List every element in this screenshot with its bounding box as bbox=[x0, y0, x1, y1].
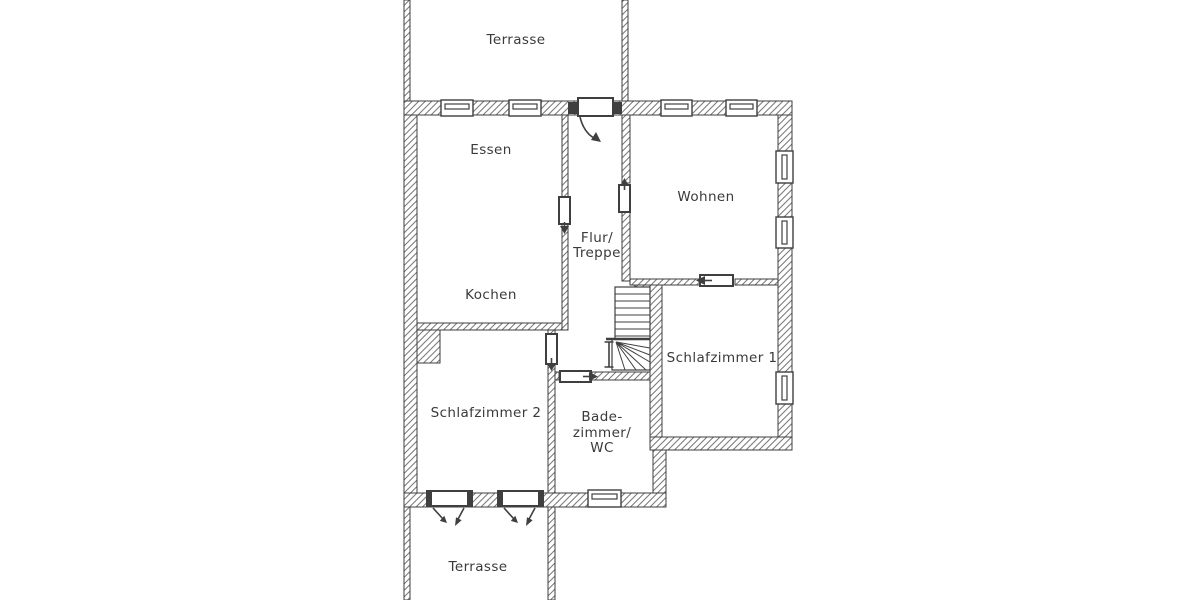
wall-schlafzimmer2-bad bbox=[548, 364, 555, 493]
wall-wohnen-south-left bbox=[630, 279, 700, 285]
wall-west-schlafzimmer1 bbox=[650, 285, 662, 437]
wall-essen-south bbox=[417, 323, 562, 330]
wall-bad-north-stub bbox=[555, 372, 559, 380]
wall-essen-flur-upper bbox=[562, 115, 568, 197]
room-label-bad-line3: WC bbox=[590, 440, 614, 456]
wall-flur-wohnen-upper bbox=[622, 115, 630, 183]
room-label-bad-line2: zimmer/ bbox=[573, 425, 631, 441]
room-label-schlafzimmer1: Schlafzimmer 1 bbox=[667, 350, 778, 366]
wall-wohnen-south-right bbox=[735, 279, 778, 285]
window-essen-1 bbox=[441, 100, 473, 116]
floorplan-drawing bbox=[0, 0, 1200, 600]
wall-flur-wohnen-lower bbox=[622, 212, 630, 281]
door-jamb bbox=[467, 491, 472, 506]
room-label-terrasse-bottom: Terrasse bbox=[449, 559, 508, 575]
room-label-wohnen: Wohnen bbox=[677, 189, 734, 205]
stair-flight bbox=[615, 287, 650, 339]
window-bad bbox=[588, 490, 621, 507]
room-label-terrasse-top: Terrasse bbox=[487, 32, 546, 48]
staircase-icon bbox=[605, 287, 651, 370]
wall-terrace-top-right bbox=[622, 0, 628, 101]
door-leaf-symbol bbox=[498, 491, 543, 506]
room-label-flur-line2: Treppe bbox=[573, 245, 621, 261]
window-wohnen-right-2 bbox=[776, 217, 793, 248]
wall-step-vertical bbox=[653, 450, 666, 493]
wall-terrace-bottom-right bbox=[548, 507, 555, 600]
window-wohnen-right-1 bbox=[776, 151, 793, 183]
wall-bad-north bbox=[592, 372, 650, 380]
wall-terrace-bottom-left bbox=[404, 507, 410, 600]
wall-bottom-schlafzimmer1 bbox=[650, 437, 792, 450]
door-terrace-1 bbox=[427, 491, 472, 526]
door-leaf-symbol bbox=[427, 491, 472, 506]
door-swing-arrow bbox=[504, 508, 514, 519]
door-leaf-symbol bbox=[559, 197, 570, 224]
wall-essen-flur-lower bbox=[562, 224, 568, 330]
window-essen-2 bbox=[509, 100, 541, 116]
door-jamb bbox=[427, 491, 432, 506]
room-label-flur-line1: Flur/ bbox=[581, 230, 613, 246]
door-jamb bbox=[498, 491, 503, 506]
door-leaf-symbol bbox=[578, 98, 613, 116]
room-label-kochen: Kochen bbox=[465, 287, 517, 303]
window-wohnen-top-2 bbox=[726, 100, 757, 116]
window-wohnen-top-1 bbox=[661, 100, 692, 116]
door-swing-arrow bbox=[580, 117, 596, 139]
wall-pier-schlafzimmer2 bbox=[417, 328, 440, 363]
door-swing-arrowhead bbox=[526, 517, 533, 526]
door-schlafzimmer1 bbox=[696, 275, 733, 286]
window-schlafzimmer1 bbox=[776, 372, 793, 404]
wall-left-exterior bbox=[404, 115, 417, 507]
room-label-schlafzimmer2: Schlafzimmer 2 bbox=[431, 405, 542, 421]
door-swing-arrowhead bbox=[455, 517, 462, 526]
door-swing-arrow bbox=[433, 508, 443, 519]
room-label-bad-line1: Bade- bbox=[581, 409, 622, 425]
door-jamb bbox=[568, 102, 578, 114]
wall-terrace-top-left bbox=[404, 0, 410, 101]
door-terrace-2 bbox=[498, 491, 543, 526]
floorplan-canvas: Terrasse Essen Kochen Flur/ Treppe Wohne… bbox=[0, 0, 1200, 600]
room-label-essen: Essen bbox=[470, 142, 511, 158]
door-jamb bbox=[538, 491, 543, 506]
door-entrance bbox=[568, 98, 622, 142]
